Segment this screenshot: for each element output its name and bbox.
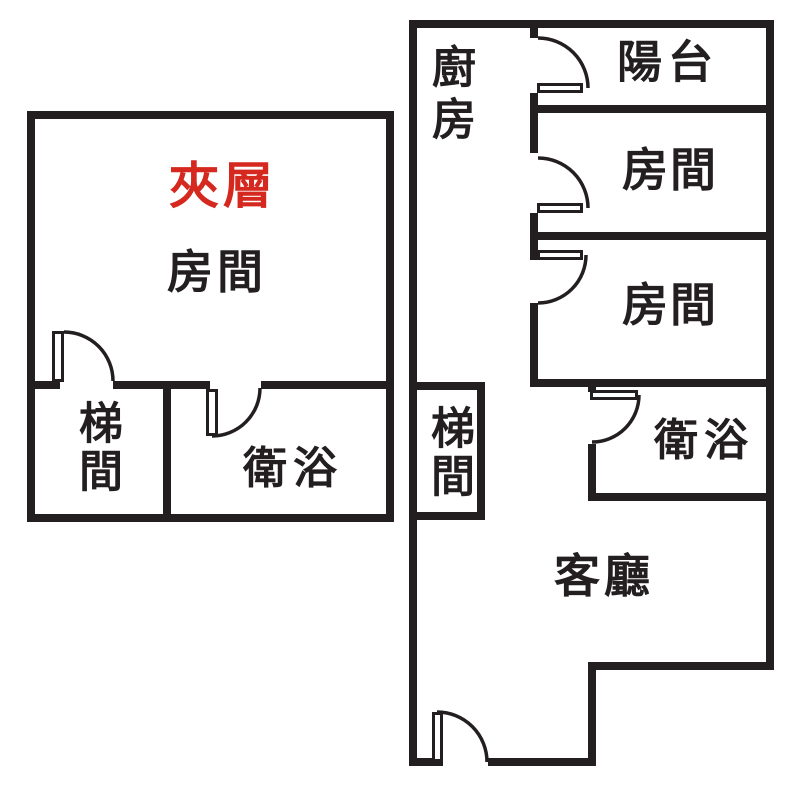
door-swing-arc [212, 388, 260, 436]
label-left-room: 房間 [167, 249, 267, 295]
door-swing-arc [538, 38, 588, 88]
label-room-1: 房間 [622, 147, 718, 193]
door-arcs-layer [0, 0, 800, 798]
label-right-bathroom: 衛浴 [654, 419, 754, 463]
label-left-bathroom: 衛浴 [243, 447, 343, 491]
label-right-stairwell: 梯間 [426, 405, 470, 501]
label-mezzanine: 夾層 [169, 161, 277, 211]
door-swing-arc [437, 712, 487, 762]
label-kitchen: 廚房 [427, 44, 471, 148]
door-swing-arc [592, 395, 639, 442]
door-swing-arc [538, 158, 588, 208]
label-left-stairwell: 梯間 [74, 400, 118, 496]
door-swing-arc [64, 332, 113, 381]
label-room-2: 房間 [622, 282, 718, 328]
door-swing-arc [538, 255, 586, 303]
label-balcony: 陽台 [617, 40, 719, 85]
floor-plan: 夾層 房間 梯間 衛浴 廚房 陽台 房間 房間 梯間 衛浴 客廳 [0, 0, 800, 798]
label-living-room: 客廳 [554, 553, 654, 599]
